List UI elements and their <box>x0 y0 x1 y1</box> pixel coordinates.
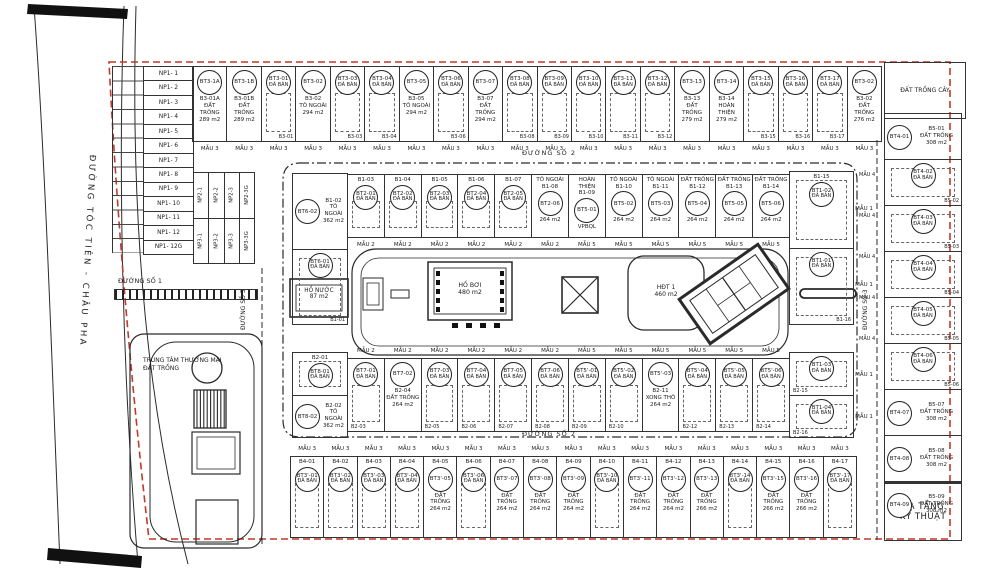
mau-label: MẪU 3 <box>572 146 605 152</box>
mau-label: MẪU 3 <box>691 446 723 452</box>
lot-cell[interactable]: BT5'-02ĐÃ BÁN B2-10 MẪU 5 <box>606 359 643 431</box>
lot-corner-b1-left: BT6-02 B1-02 TÔ NGOÀI 362 m2 BT6-01ĐÃ BÁ… <box>292 173 348 325</box>
lot-cell[interactable]: ĐẤT TRỐNG B1-12 BT5-04 264 m2 MẪU 5 <box>679 175 716 237</box>
np1-lot[interactable]: NP1- 2 <box>144 81 193 95</box>
np1-lot[interactable]: NP1- 11 <box>144 212 193 226</box>
mau-label: MẪU 3 <box>491 446 523 452</box>
lot-number-circle: BT3-10ĐÃ BÁN <box>576 70 601 95</box>
mau-label: MẪU 3 <box>358 446 390 452</box>
mau-label: MẪU 1 <box>855 282 873 288</box>
lot-number-circle: BT3-06ĐÃ BÁN <box>438 70 463 95</box>
lot-cell[interactable]: BT4-01 B5-01 ĐẤT TRỐNG 308 m2 <box>885 114 961 160</box>
lot-number-circle: BT2-05ĐÃ BÁN <box>501 185 526 210</box>
lot-number-circle: BT3'-16 <box>794 467 819 492</box>
mau-label: MẪU 5 <box>716 348 752 354</box>
lot-cell[interactable]: B1-04 BT2-02ĐÃ BÁN MẪU 2 <box>385 175 422 237</box>
lot-cell[interactable]: BT6-01ĐÃ BÁN B1-01 <box>293 250 347 325</box>
lot-number-circle: BT3-08ĐÃ BÁN <box>507 70 532 95</box>
lot-number-circle: BT3-1B <box>232 70 257 95</box>
np2-lot[interactable]: NP2-1 <box>194 173 209 218</box>
lot-cell[interactable]: BT3-06ĐÃ BÁN B3-06 MẪU 3 <box>434 67 468 141</box>
lot-cell[interactable]: BT7-04ĐÃ BÁN B2-06 MẪU 2 <box>458 359 495 431</box>
np1-boundary-ticks <box>112 66 144 253</box>
lot-cell[interactable]: BT4-08 B5-08 ĐẤT TRỐNG 308 m2 <box>885 436 961 482</box>
lot-cell[interactable]: BT3-1A B3-01A ĐẤT TRỐNG 289 m2 MẪU 3 <box>193 67 227 141</box>
mau-label: MẪU 3 <box>296 146 329 152</box>
np1-lot[interactable]: NP1- 8 <box>144 168 193 182</box>
np2-np3-block: NP2-1NP2-2NP2-3NP2-3G NP3-1NP3-2NP3-3NP3… <box>193 172 255 264</box>
lot-number-circle: BT4-08 <box>887 447 912 472</box>
lot-cell[interactable]: BT7-01ĐÃ BÁN B2-03 MẪU 2 <box>348 359 385 431</box>
mau-label: MẪU 1 <box>855 372 873 378</box>
mau-label: MẪU 3 <box>365 146 398 152</box>
lot-number-circle: BT3-11ĐÃ BÁN <box>611 70 636 95</box>
lot-number-circle: BT8-02 <box>295 404 320 429</box>
lot-cell[interactable]: BT4-02ĐÃ BÁN B5-02 <box>885 160 961 206</box>
lot-cell[interactable]: B4-11 BT3'-11 ĐẤT TRỐNG 264 m2 MẪU 3 <box>624 457 657 537</box>
np3-lot[interactable]: NP3-2 <box>209 219 224 264</box>
np3-lot[interactable]: NP3-3 <box>225 219 240 264</box>
lot-cell[interactable]: B4-09 BT3'-09 ĐẤT TRỐNG 264 m2 MẪU 3 <box>557 457 590 537</box>
lot-number-circle: BT3-12ĐÃ BÁN <box>645 70 670 95</box>
mau-label: MẪU 3 <box>227 146 260 152</box>
np1-lot[interactable]: NP1- 10 <box>144 197 193 211</box>
mau-label: MẪU 3 <box>790 446 822 452</box>
lot-cell[interactable]: BT3-09ĐÃ BÁN B3-09 MẪU 3 <box>538 67 572 141</box>
road-label-so2-top: ĐƯỜNG SỐ 2 <box>522 149 576 157</box>
lot-number-circle: BT3'-07 <box>494 467 519 492</box>
lot-cell[interactable]: BT8-02 B2-02 TÔ NGOÀI 362 m2 <box>293 396 347 438</box>
lot-cell[interactable]: BT4-04ĐÃ BÁN B5-04 <box>885 252 961 298</box>
np3-row: NP3-1NP3-2NP3-3NP3-3G <box>194 219 254 264</box>
road-label-so5: ĐƯỜNG SỐ 5 <box>240 289 247 330</box>
planter <box>363 278 409 310</box>
lot-number-circle: BT1-04ĐÃ BÁN <box>809 399 834 424</box>
gazebo-icon <box>562 277 598 313</box>
lot-cell[interactable]: ĐẤT TRỐNG B1-14 BT5-06 264 m2 MẪU 5 <box>753 175 789 237</box>
mau-label: MẪU 3 <box>400 146 433 152</box>
mau-label: MẪU 3 <box>848 146 881 152</box>
lot-number-circle: BT6-01ĐÃ BÁN <box>308 253 333 278</box>
np1-lot[interactable]: NP1- 12 <box>144 226 193 240</box>
lot-cell[interactable]: B4-13 BT3'-13 ĐẤT TRỐNG 266 m2 MẪU 3 <box>691 457 724 537</box>
lot-number-circle: BT7-06ĐÃ BÁN <box>538 362 563 387</box>
lot-cell[interactable]: B4-02 BT3'-02ĐÃ BÁN MẪU 3 <box>324 457 357 537</box>
lot-cell[interactable]: BT4-06ĐÃ BÁN B5-06 <box>885 344 961 390</box>
mau-label: MẪU 5 <box>716 242 752 248</box>
lot-cell[interactable]: BT3-12ĐÃ BÁN B3-12 MẪU 3 <box>641 67 675 141</box>
mau-label: MẪU 2 <box>385 242 421 248</box>
lot-number-circle: BT3'-08 <box>528 467 553 492</box>
np3-lot[interactable]: NP3-1 <box>194 219 209 264</box>
lot-number-circle: BT3-1A <box>197 70 222 95</box>
lot-cell[interactable]: HOÀN THIỆN B1-09 BT5-01 VPBQL MẪU 5 <box>569 175 606 237</box>
lot-cell[interactable]: B1-03 BT2-01ĐÃ BÁN MẪU 2 <box>348 175 385 237</box>
lot-number-circle: BT3-02 <box>852 70 877 95</box>
lot-number-circle: BT1-02ĐÃ BÁN <box>809 182 834 207</box>
mau-label: MẪU 3 <box>324 446 356 452</box>
lot-number-circle: BT4-06ĐÃ BÁN <box>911 347 936 372</box>
lot-number-circle: BT3-09ĐÃ BÁN <box>542 70 567 95</box>
mau-label: MẪU 3 <box>813 146 846 152</box>
mau-label: MẪU 2 <box>495 348 531 354</box>
np1-lot[interactable]: NP1- 7 <box>144 154 193 168</box>
lot-number-circle: BT4-05ĐÃ BÁN <box>911 301 936 326</box>
lot-row-b3: BT3-1A B3-01A ĐẤT TRỐNG 289 m2 MẪU 3 BT3… <box>192 66 882 142</box>
np1-lot[interactable]: NP1- 12G <box>144 241 193 254</box>
lot-number-circle: BT3-05 <box>404 70 429 95</box>
lot-cell[interactable]: BT3-16ĐÃ BÁN B3-16 MẪU 3 <box>779 67 813 141</box>
mau-label: MẪU 3 <box>424 446 456 452</box>
lot-number-circle: BT3'-02ĐÃ BÁN <box>328 467 353 492</box>
lot-cell[interactable]: ĐẤT TRỐNG B1-13 BT5-05 264 m2 MẪU 5 <box>716 175 753 237</box>
lot-cell[interactable]: BT3-04ĐÃ BÁN B3-04 MẪU 3 <box>365 67 399 141</box>
lot-number-circle: BT5'-03 <box>648 362 673 387</box>
lot-number-circle: BT3'-06ĐÃ BÁN <box>461 467 486 492</box>
lot-number-circle: BT5-05 <box>722 191 747 216</box>
lot-cell[interactable]: B1-05 BT2-03ĐÃ BÁN MẪU 2 <box>422 175 459 237</box>
lot-cell[interactable]: BT4-07 B5-07 ĐẤT TRỐNG 308 m2 <box>885 390 961 436</box>
lot-cell[interactable]: TÔ NGOÀI B1-10 BT5-02 264 m2 MẪU 5 <box>606 175 643 237</box>
mau-label: MẪU 2 <box>495 242 531 248</box>
np2-lot[interactable]: NP2-3 <box>225 173 240 218</box>
lot-number-circle: BT2-01ĐÃ BÁN <box>353 185 378 210</box>
lot-number-circle: BT7-04ĐÃ BÁN <box>464 362 489 387</box>
lot-cell[interactable]: BT3-05 B3-05 TÔ NGOÀI 294 m2 MẪU 3 <box>400 67 434 141</box>
mau-label: MẪU 2 <box>348 348 384 354</box>
lot-cell[interactable]: BT3-08ĐÃ BÁN B3-08 MẪU 3 <box>503 67 537 141</box>
mau-label: MẪU 3 <box>291 446 323 452</box>
road-label-so1: ĐƯỜNG SỐ 1 <box>118 277 162 285</box>
lot-number-circle: BT5-03 <box>648 191 673 216</box>
lot-cell[interactable]: B1-15 BT1-02ĐÃ BÁN MẪU 1 <box>790 172 853 249</box>
lot-cell[interactable]: BT3-14 B3-14 HOÀN THIỆN 279 m2 MẪU 3 <box>710 67 744 141</box>
lot-number-circle: BT5'-06ĐÃ BÁN <box>759 362 784 387</box>
lot-number-circle: BT3'-17ĐÃ BÁN <box>827 467 852 492</box>
mau-label: MẪU 3 <box>657 446 689 452</box>
master-plan-canvas: NP1- 1NP1- 2NP1- 3NP1- 4NP1- 5NP1- 6NP1-… <box>0 0 1000 570</box>
road-label-so3: ĐƯỜNG SỐ 3 <box>862 289 869 330</box>
lot-number-circle: BT2-02ĐÃ BÁN <box>390 185 415 210</box>
mau-label: MẪU 3 <box>591 446 623 452</box>
mau-label: MẪU 2 <box>422 242 458 248</box>
road-end-bar-top <box>27 4 128 19</box>
lot-cell[interactable]: B2-01 BT8-01ĐÃ BÁN <box>293 353 347 396</box>
lot-number-circle: BT3-17ĐÃ BÁN <box>817 70 842 95</box>
lot-number-circle: BT7-02 <box>390 362 415 387</box>
lot-cell[interactable]: BT6-02 B1-02 TÔ NGOÀI 362 m2 <box>293 174 347 250</box>
lot-number-circle: BT4-02ĐÃ BÁN <box>911 163 936 188</box>
lot-cell[interactable]: TÔ NGOÀI B1-08 BT2-06 264 m2 MẪU 2 <box>532 175 569 237</box>
lot-number-circle: BT5'-02ĐÃ BÁN <box>611 362 636 387</box>
lot-number-circle: BT6-02 <box>295 199 320 224</box>
lot-number-circle: BT5-02 <box>611 191 636 216</box>
lot-cell[interactable]: B4-17 BT3'-17ĐÃ BÁN MẪU 3 <box>824 457 856 537</box>
mau-label: MẪU 3 <box>434 146 467 152</box>
lot-number-circle: BT3'-10ĐÃ BÁN <box>594 467 619 492</box>
lot-number-circle: BT3-01ĐÃ BÁN <box>266 70 291 95</box>
lot-cell[interactable]: B1-07 BT2-05ĐÃ BÁN MẪU 2 <box>495 175 532 237</box>
tree-planting-area: ĐẤT TRỒNG CÂY <box>884 62 966 119</box>
mau-label: MẪU 5 <box>569 348 605 354</box>
lot-cell[interactable]: BT5'-06ĐÃ BÁN B2-14 MẪU 5 <box>753 359 789 431</box>
lot-number-circle: BT4-07 <box>887 401 912 426</box>
hdt-label: HĐT 1 460 m2 <box>631 284 701 298</box>
lot-number-circle: BT5-01 <box>574 198 599 223</box>
lot-corner-b1-right: B1-15 BT1-02ĐÃ BÁN MẪU 1 BT1-01ĐÃ BÁN B1… <box>789 171 854 325</box>
lot-number-circle: BT3-15ĐÃ BÁN <box>748 70 773 95</box>
lot-number-circle: BT7-05ĐÃ BÁN <box>501 362 526 387</box>
mau-label: MẪU 3 <box>193 146 226 152</box>
lot-cell[interactable]: B4-04 BT3'-04ĐÃ BÁN MẪU 3 <box>391 457 424 537</box>
lot-cell[interactable]: B4-15 BT3'-15 ĐẤT TRỐNG 266 m2 MẪU 3 <box>757 457 790 537</box>
mau-label: MẪU 5 <box>643 348 679 354</box>
mau-label: MẪU 5 <box>606 348 642 354</box>
mau-label: MẪU 2 <box>458 242 494 248</box>
np1-lot[interactable]: NP1- 1 <box>144 67 193 81</box>
lot-cell[interactable]: BT4-03ĐÃ BÁN B5-03 <box>885 206 961 252</box>
lot-row-b1: B1-03 BT2-01ĐÃ BÁN MẪU 2 B1-04 BT2-02ĐÃ … <box>347 174 790 238</box>
mau-label: MẪU 3 <box>262 146 295 152</box>
lot-cell[interactable]: BT3-13 B3-13 ĐẤT TRỐNG 279 m2 MẪU 3 <box>675 67 709 141</box>
mau-label: MẪU 2 <box>532 348 568 354</box>
lot-number-circle: BT4-04ĐÃ BÁN <box>911 255 936 280</box>
np1-lot[interactable]: NP1- 3 <box>144 96 193 110</box>
lot-number-circle: BT4-09 <box>887 493 912 518</box>
lot-cell[interactable]: B4-12 BT3'-12 ĐẤT TRỐNG 264 m2 MẪU 3 <box>657 457 690 537</box>
np2-lot[interactable]: NP2-3G <box>240 173 254 218</box>
lot-cell[interactable]: BT3-01ĐÃ BÁN B3-01 MẪU 3 <box>262 67 296 141</box>
mau-label: MẪU 5 <box>569 242 605 248</box>
lot-cell[interactable]: BT3-11ĐÃ BÁN B3-11 MẪU 3 <box>606 67 640 141</box>
lot-number-circle: BT3'-12 <box>661 467 686 492</box>
np2-lot[interactable]: NP2-2 <box>209 173 224 218</box>
mau-label: MẪU 3 <box>724 446 756 452</box>
pool-label: HỒ BƠI 480 m2 <box>434 282 506 296</box>
mau-label: MẪU 3 <box>524 446 556 452</box>
lot-corner-b2-left: B2-01 BT8-01ĐÃ BÁN BT8-02 B2-02 TÔ NGOÀI… <box>292 352 348 438</box>
mau-label: MẪU 5 <box>753 348 789 354</box>
lot-number-circle: BT3'-01ĐÃ BÁN <box>295 467 320 492</box>
lot-number-circle: BT4-01 <box>887 125 912 150</box>
np1-lot[interactable]: NP1- 4 <box>144 110 193 124</box>
mau-label: MẪU 3 <box>457 446 489 452</box>
mau-label: MẪU 5 <box>753 242 789 248</box>
lot-number-circle: BT5'-05ĐÃ BÁN <box>722 362 747 387</box>
crosswalk-road1 <box>114 289 258 300</box>
lot-number-circle: BT2-04ĐÃ BÁN <box>464 185 489 210</box>
lot-cell[interactable]: B4-06 BT3'-06ĐÃ BÁN MẪU 3 <box>457 457 490 537</box>
lot-column-b5: BT4-01 B5-01 ĐẤT TRỐNG 308 m2 BT4-02ĐÃ B… <box>884 113 962 484</box>
lot-number-circle: BT2-03ĐÃ BÁN <box>427 185 452 210</box>
lot-cell[interactable]: B4-01 BT3'-01ĐÃ BÁN MẪU 3 <box>291 457 324 537</box>
np2-row: NP2-1NP2-2NP2-3NP2-3G <box>194 173 254 219</box>
lot-cell[interactable]: BT3-1B B3-01B ĐẤT TRỐNG 289 m2 MẪU 3 <box>227 67 261 141</box>
lot-cell[interactable]: BT7-06ĐÃ BÁN B2-08 MẪU 2 <box>532 359 569 431</box>
lot-number-circle: BT1-03ĐÃ BÁN <box>809 356 834 381</box>
mau-label: MẪU 5 <box>679 242 715 248</box>
lot-cell[interactable]: B1-06 BT2-04ĐÃ BÁN MẪU 2 <box>458 175 495 237</box>
lot-number-circle: BT4-03ĐÃ BÁN <box>911 209 936 234</box>
mau-label: MẪU 1 <box>855 414 873 420</box>
lot-cell[interactable]: BT5'-04ĐÃ BÁN B2-12 MẪU 5 <box>679 359 716 431</box>
lot-corner-b2-right: BT1-03ĐÃ BÁN B2-15 MẪU 1 BT1-04ĐÃ BÁN B2… <box>789 352 854 438</box>
road-label-so2-bottom: ĐƯỜNG SỐ 2 <box>522 430 576 438</box>
mau-label: MẪU 1 <box>855 206 873 212</box>
lot-row-b4: B4-01 BT3'-01ĐÃ BÁN MẪU 3 B4-02 BT3'-02Đ… <box>290 456 857 538</box>
lot-number-circle: BT3'-09 <box>561 467 586 492</box>
mau-label: MẪU 3 <box>469 146 502 152</box>
mau-label: MẪU 3 <box>675 146 708 152</box>
np1-lot[interactable]: NP1- 9 <box>144 183 193 197</box>
mau-label: MẪU 3 <box>757 446 789 452</box>
lot-number-circle: BT2-06 <box>538 191 563 216</box>
mau-label: MẪU 4 <box>859 154 883 195</box>
lot-cell[interactable]: BT3-02 B3-02 ĐẤT TRỐNG 276 m2 MẪU 3 <box>848 67 881 141</box>
mau-label: MẪU 2 <box>348 242 384 248</box>
mau-label: MẪU 5 <box>679 348 715 354</box>
mau-label: MẪU 3 <box>779 146 812 152</box>
mau-label: MẪU 3 <box>606 146 639 152</box>
lot-number-circle: BT3'-15 <box>761 467 786 492</box>
lot-number-circle: BT3-14 <box>714 70 739 95</box>
pond-label: HỒ NƯỚC 87 m2 <box>292 288 346 300</box>
lot-cell[interactable]: BT3-17ĐÃ BÁN B3-17 MẪU 3 <box>813 67 847 141</box>
lot-number-circle: BT5-04 <box>685 191 710 216</box>
lot-cell[interactable]: B4-05 BT3'-05 ĐẤT TRỐNG 264 m2 MẪU 3 <box>424 457 457 537</box>
lot-cell[interactable]: BT5'-01ĐÃ BÁN B2-09 MẪU 5 <box>569 359 606 431</box>
lot-number-circle: BT3-02 <box>301 70 326 95</box>
lot-number-circle: BT3'-03ĐÃ BÁN <box>361 467 386 492</box>
road-end-bar-bottom <box>47 548 142 568</box>
mau-label: MẪU 4 <box>859 195 883 236</box>
lot-cell[interactable]: BT4-05ĐÃ BÁN B5-05 <box>885 298 961 344</box>
lot-number-circle: BT3'-05 <box>428 467 453 492</box>
lot-number-circle: BT8-01ĐÃ BÁN <box>308 363 333 388</box>
lot-cell[interactable]: BT7-03ĐÃ BÁN B2-05 MẪU 2 <box>422 359 459 431</box>
np1-lot[interactable]: NP1- 5 <box>144 125 193 139</box>
mau-label: MẪU 3 <box>744 146 777 152</box>
lot-number-circle: BT5'-01ĐÃ BÁN <box>574 362 599 387</box>
lot-cell[interactable]: BT3-07 B3-07 ĐẤT TRỐNG 294 m2 MẪU 3 <box>469 67 503 141</box>
lot-number-circle: BT3-13 <box>680 70 705 95</box>
mau-label: MẪU 4 <box>859 236 883 277</box>
lot-number-circle: BT7-01ĐÃ BÁN <box>353 362 378 387</box>
lot-number-circle: BT3-07 <box>473 70 498 95</box>
lot-cell[interactable]: TÔ NGOÀI B1-11 BT5-03 264 m2 MẪU 5 <box>643 175 680 237</box>
lot-cell[interactable]: BT1-01ĐÃ BÁN B1-16 MẪU 1 <box>790 249 853 325</box>
lot-number-circle: BT3-04ĐÃ BÁN <box>369 70 394 95</box>
lot-cell[interactable]: B4-07 BT3'-07 ĐẤT TRỐNG 264 m2 MẪU 3 <box>491 457 524 537</box>
lot-row-b2: BT7-01ĐÃ BÁN B2-03 MẪU 2 BT7-02 B2-04 ĐẤ… <box>347 358 790 432</box>
mau-label: MẪU 3 <box>557 446 589 452</box>
mau-label: MẪU 3 <box>824 446 856 452</box>
lot-cell[interactable]: B4-08 BT3'-08 ĐẤT TRỐNG 264 m2 MẪU 3 <box>524 457 557 537</box>
lot-cell[interactable]: BT3-10ĐÃ BÁN B3-10 MẪU 3 <box>572 67 606 141</box>
mau-label: MẪU 3 <box>641 146 674 152</box>
mau-label: MẪU 5 <box>606 242 642 248</box>
lot-number-circle: BT3'-11 <box>628 467 653 492</box>
lot-cell[interactable]: BT3-15ĐÃ BÁN B3-15 MẪU 3 <box>744 67 778 141</box>
mau-label: MẪU 3 <box>391 446 423 452</box>
lot-number-circle: BT7-03ĐÃ BÁN <box>427 362 452 387</box>
mau-label: MẪU 3 <box>331 146 364 152</box>
lot-cell[interactable]: BT3-02 B3-02 TÔ NGOÀI 294 m2 MẪU 3 <box>296 67 330 141</box>
lot-number-circle: BT5-06 <box>759 191 784 216</box>
lot-cell[interactable]: B4-03 BT3'-03ĐÃ BÁN MẪU 3 <box>358 457 391 537</box>
mau-label: MẪU 3 <box>624 446 656 452</box>
lot-number-circle: BT3'-13 <box>694 467 719 492</box>
mau-label: MẪU 2 <box>458 348 494 354</box>
lot-cell[interactable]: BT1-04ĐÃ BÁN B2-16 MẪU 1 <box>790 396 853 438</box>
lot-cell[interactable]: BT7-02 B2-04 ĐẤT TRỐNG 264 m2 MẪU 2 <box>385 359 422 431</box>
mau-label: MẪU 2 <box>532 242 568 248</box>
lot-cell[interactable]: BT3-03ĐÃ BÁN B3-03 MẪU 3 <box>331 67 365 141</box>
mau-label: MẪU 3 <box>710 146 743 152</box>
lot-number-circle: BT3'-04ĐÃ BÁN <box>395 467 420 492</box>
lot-number-circle: BT5'-04ĐÃ BÁN <box>685 362 710 387</box>
mau-label: MẪU 2 <box>385 348 421 354</box>
mau-label: MẪU 5 <box>643 242 679 248</box>
lot-number-circle: BT1-01ĐÃ BÁN <box>809 252 834 277</box>
np1-lot-list: NP1- 1NP1- 2NP1- 3NP1- 4NP1- 5NP1- 6NP1-… <box>143 66 194 255</box>
np3-lot[interactable]: NP3-3G <box>240 219 254 264</box>
lot-number-circle: BT3-16ĐÃ BÁN <box>783 70 808 95</box>
lot-cell[interactable]: B4-16 BT3'-16 ĐẤT TRỐNG 266 m2 MẪU 3 <box>790 457 823 537</box>
lot-cell[interactable]: BT5'-03 B2-11 XONG THÔ 264 m2 MẪU 5 <box>643 359 680 431</box>
lot-cell[interactable]: BT5'-05ĐÃ BÁN B2-13 MẪU 5 <box>716 359 753 431</box>
lot-cell[interactable]: B4-14 BT3'-14ĐÃ BÁN MẪU 3 <box>724 457 757 537</box>
lot-cell[interactable]: BT7-05ĐÃ BÁN B2-07 MẪU 2 <box>495 359 532 431</box>
lot-cell[interactable]: BT1-03ĐÃ BÁN B2-15 MẪU 1 <box>790 353 853 396</box>
mau-label: MẪU 2 <box>422 348 458 354</box>
lot-number-circle: BT3-03ĐÃ BÁN <box>335 70 360 95</box>
lot-number-circle: BT3'-14ĐÃ BÁN <box>728 467 753 492</box>
commercial-label: TRUNG TÂM THƯƠNG MẠI ĐẤT TRỐNG <box>143 357 238 373</box>
np1-lot[interactable]: NP1- 6 <box>144 139 193 153</box>
lot-cell[interactable]: B4-10 BT3'-10ĐÃ BÁN MẪU 3 <box>591 457 624 537</box>
